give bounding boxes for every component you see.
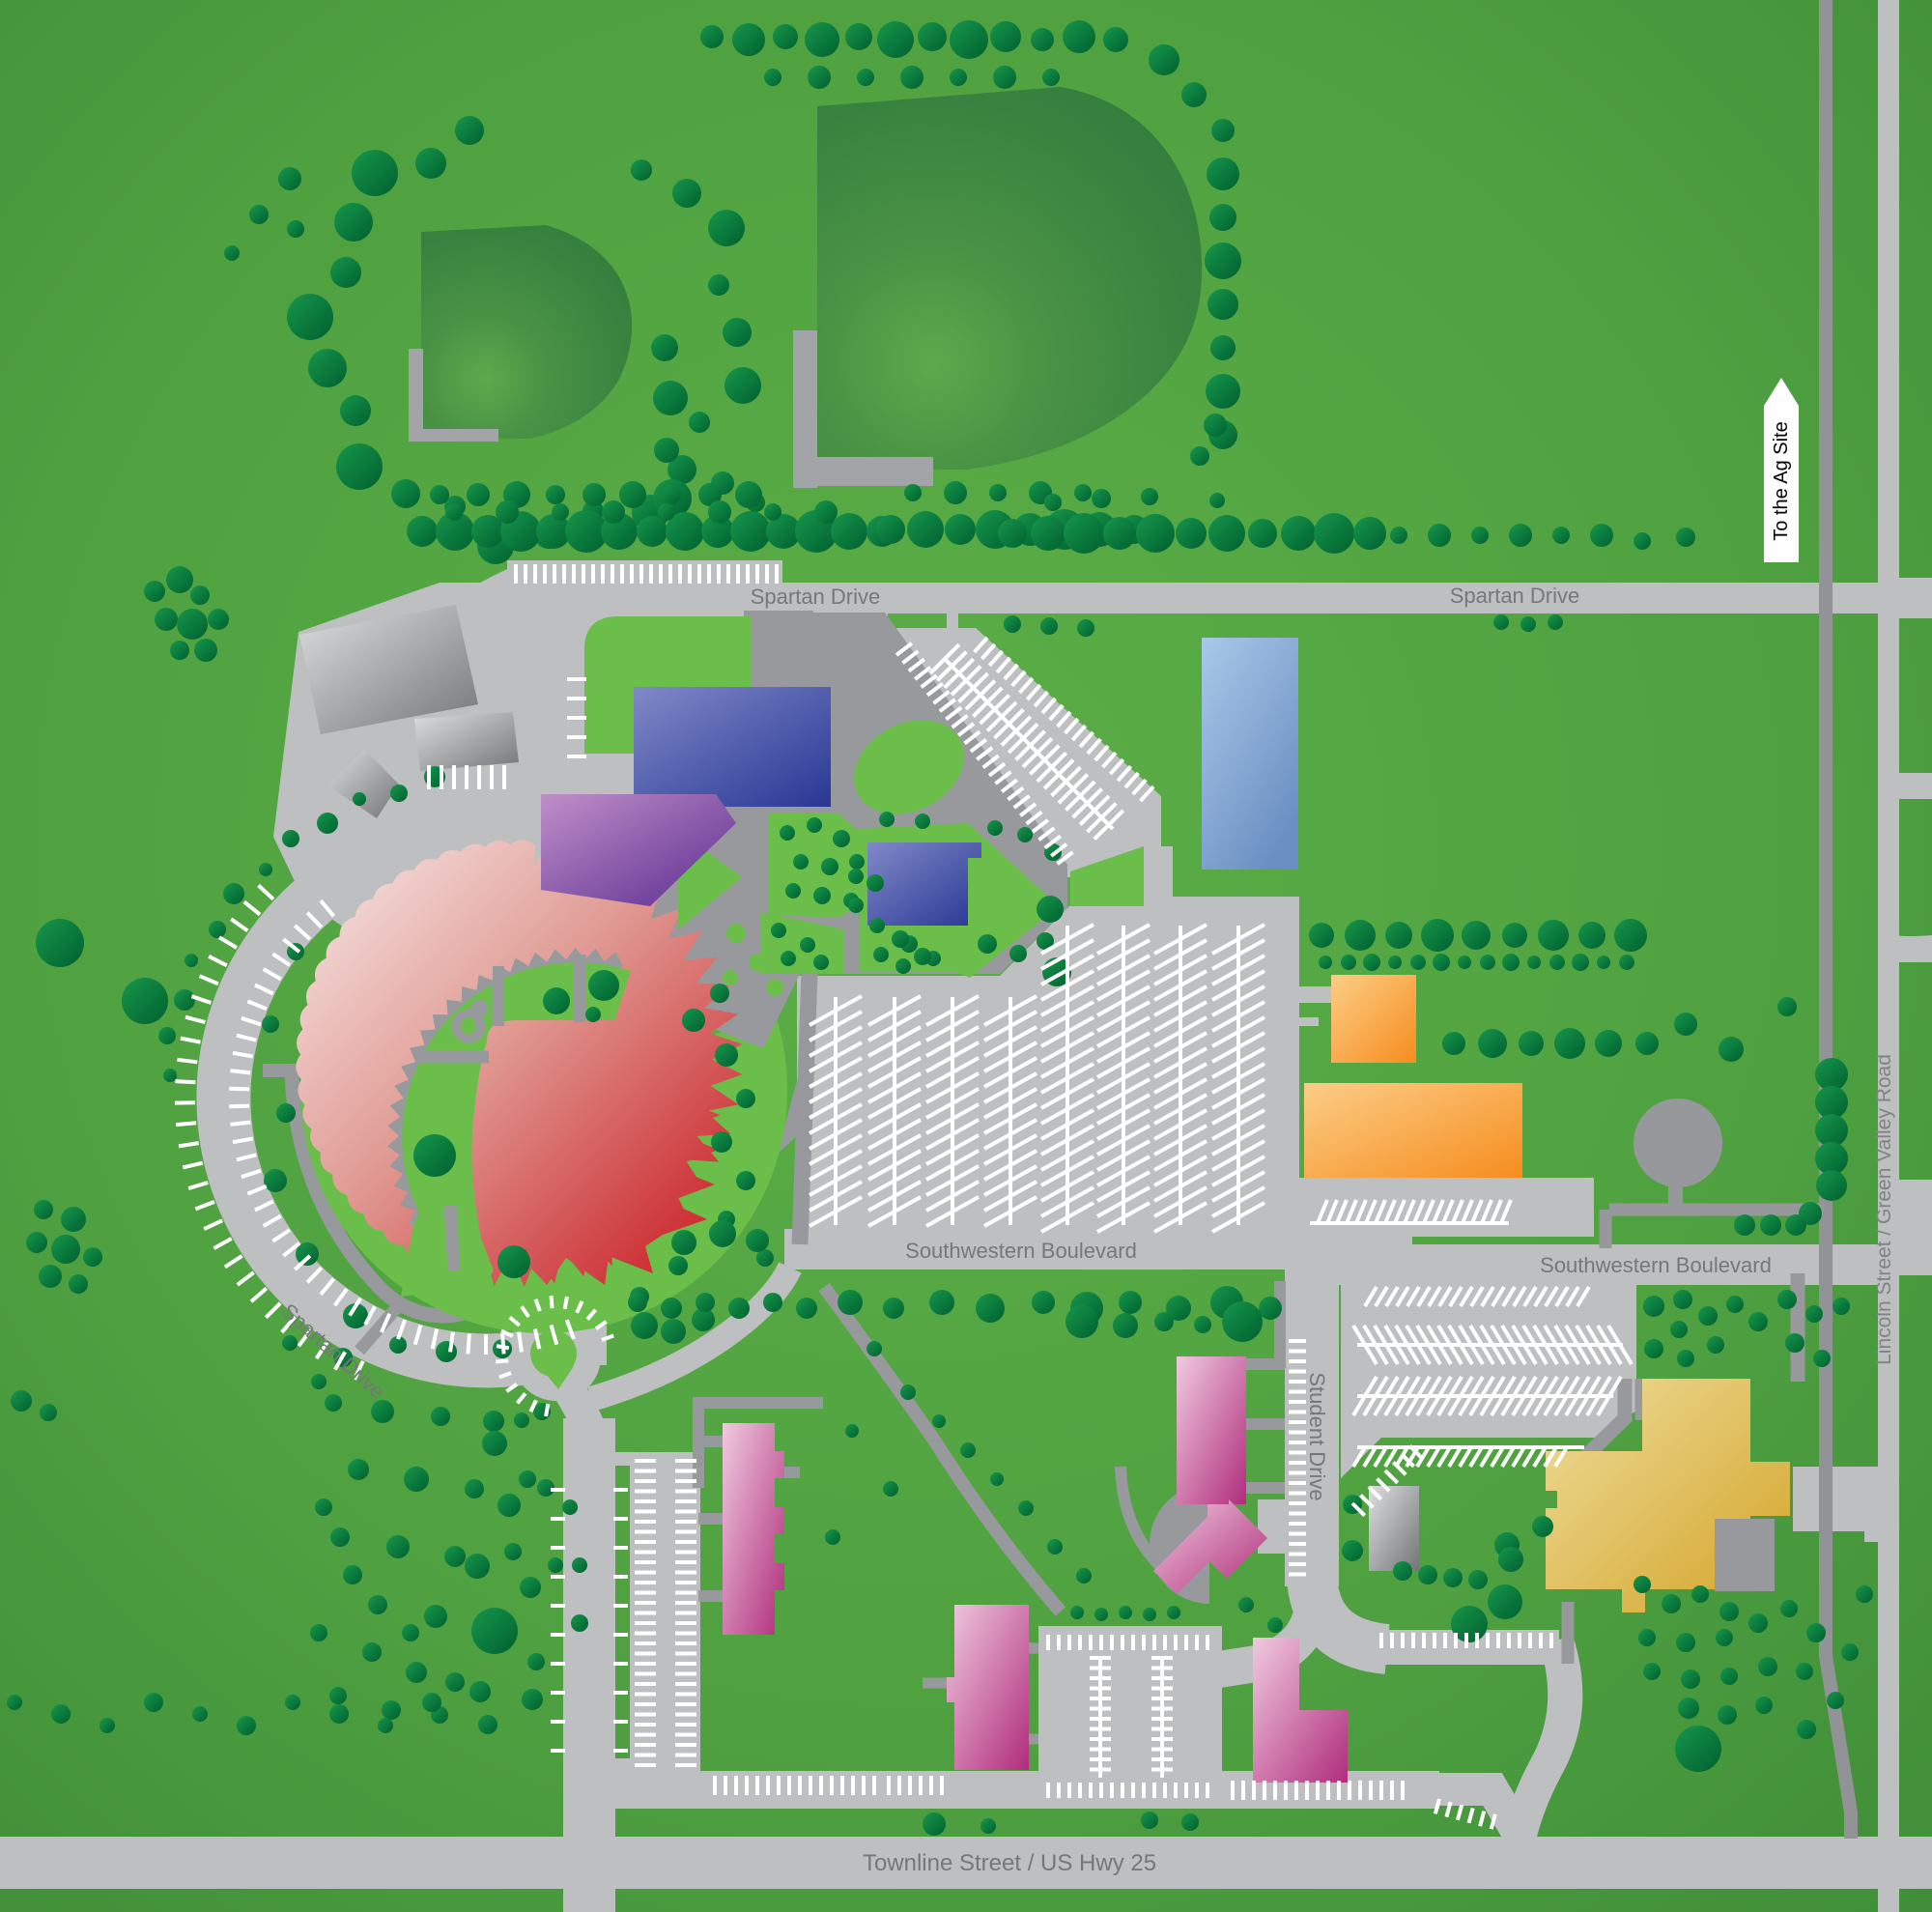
svg-text:Lincoln Street / Green Valle: Lincoln Street / Green Valley Road [1873,1054,1895,1365]
svg-text:Southwestern Boulevard: Southwestern Boulevard [1540,1253,1772,1277]
svg-text:Spartan Drive: Spartan Drive [1450,584,1580,608]
svg-text:Townline Street / US Hwy 25: Townline Street / US Hwy 25 [863,1850,1156,1876]
svg-text:Spartan Drive: Spartan Drive [751,585,881,609]
svg-text:Southwestern Boulevard: Southwestern Boulevard [905,1239,1137,1263]
svg-text:To the Ag Site: To the Ag Site [1771,421,1792,540]
svg-text:Student Drive: Student Drive [1305,1372,1329,1500]
